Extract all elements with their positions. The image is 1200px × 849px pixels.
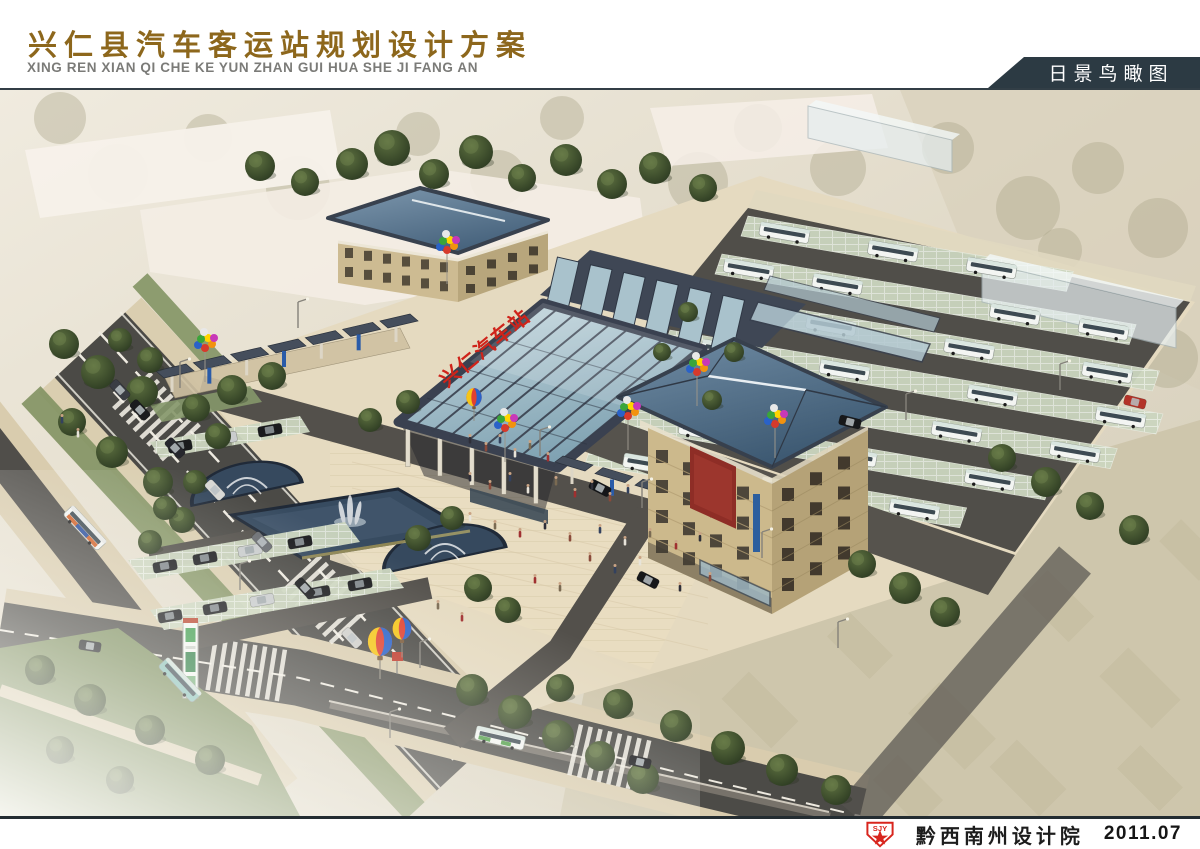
bottom-fade bbox=[0, 470, 700, 816]
page-subtitle-pinyin: XING REN XIAN QI CHE KE YUN ZHAN GUI HUA… bbox=[27, 60, 478, 75]
rendering-aerial-view: 兴仁汽车站 bbox=[0, 88, 1200, 816]
view-label-tab: 日景鸟瞰图 bbox=[988, 57, 1200, 88]
page-title: 兴仁县汽车客运站规划设计方案 bbox=[28, 22, 532, 64]
view-label: 日景鸟瞰图 bbox=[1048, 59, 1173, 86]
design-institute-logo: SJY bbox=[864, 821, 896, 848]
footer: SJY 黔西南州设计院 2011.07 bbox=[0, 816, 1200, 849]
design-institute-name: 黔西南州设计院 bbox=[916, 820, 1084, 849]
aerial-rendering: 兴仁汽车站 bbox=[0, 90, 1200, 816]
presentation-board: 兴仁县汽车客运站规划设计方案 XING REN XIAN QI CHE KE Y… bbox=[0, 0, 1200, 849]
blue-banner bbox=[753, 494, 760, 552]
date: 2011.07 bbox=[1104, 823, 1182, 845]
header: 兴仁县汽车客运站规划设计方案 XING REN XIAN QI CHE KE Y… bbox=[0, 0, 1200, 88]
